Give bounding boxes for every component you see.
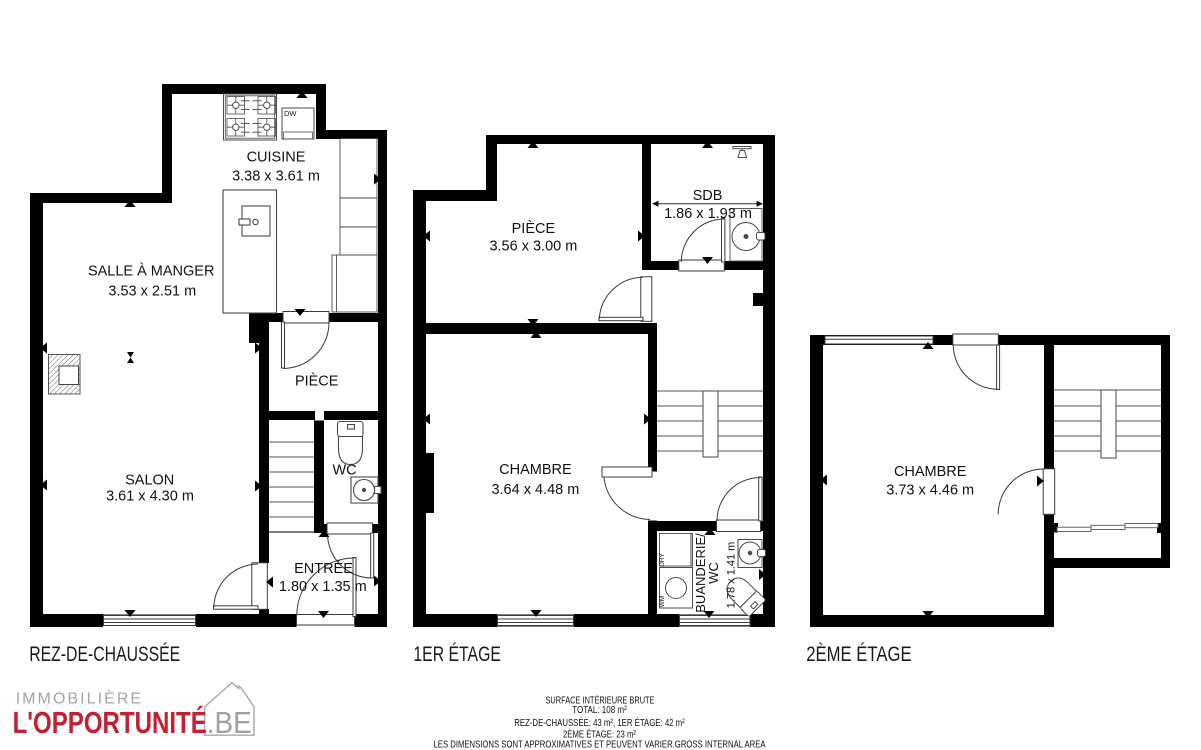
- svg-text:1ER ÉTAGE: 1ER ÉTAGE: [413, 643, 501, 666]
- svg-text:3.56 x 3.00 m: 3.56 x 3.00 m: [489, 239, 577, 255]
- svg-text:1.78 x 1.41 m: 1.78 x 1.41 m: [726, 542, 738, 609]
- svg-text:1.86 x 1.93 m: 1.86 x 1.93 m: [664, 206, 752, 222]
- svg-text:2ÈME ÉTAGE: 2ÈME ÉTAGE: [806, 643, 911, 666]
- svg-text:ENTRÉE: ENTRÉE: [294, 560, 353, 577]
- svg-text:3.61 x 4.30 m: 3.61 x 4.30 m: [106, 489, 194, 505]
- svg-text:PIÈCE: PIÈCE: [295, 373, 339, 390]
- svg-text:REZ-DE-CHAUSSÉE: REZ-DE-CHAUSSÉE: [29, 643, 180, 666]
- svg-text:3.53 x 2.51 m: 3.53 x 2.51 m: [108, 283, 196, 299]
- svg-text:CHAMBRE: CHAMBRE: [499, 462, 572, 478]
- svg-text:PIÈCE: PIÈCE: [512, 220, 556, 237]
- svg-text:3.73 x 4.46 m: 3.73 x 4.46 m: [886, 482, 974, 498]
- svg-text:TOTAL: 108 m²: TOTAL: 108 m²: [572, 704, 627, 716]
- svg-text:REZ-DE-CHAUSSÉE: 43 m², 1ER ÉT: REZ-DE-CHAUSSÉE: 43 m², 1ER ÉTAGE: 42 m²: [514, 716, 685, 729]
- svg-text:L'OPPORTUNITÉ: L'OPPORTUNITÉ: [13, 705, 207, 740]
- svg-text:3.64 x 4.48 m: 3.64 x 4.48 m: [491, 482, 579, 498]
- svg-text:DW: DW: [284, 109, 297, 118]
- svg-text:WM: WM: [659, 596, 666, 608]
- svg-text:1.80 x 1.35 m: 1.80 x 1.35 m: [279, 579, 367, 595]
- svg-text:LES DIMENSIONS SONT APPROXIMAT: LES DIMENSIONS SONT APPROXIMATIVES ET PE…: [434, 739, 766, 750]
- svg-text:SALON: SALON: [125, 472, 174, 488]
- svg-text:3.38 x 3.61 m: 3.38 x 3.61 m: [232, 169, 320, 185]
- svg-text:.BE: .BE: [207, 705, 252, 740]
- svg-text:SALLE À MANGER: SALLE À MANGER: [88, 262, 215, 279]
- svg-text:CUISINE: CUISINE: [247, 150, 306, 166]
- svg-text:WC: WC: [333, 463, 357, 479]
- svg-text:CHAMBRE: CHAMBRE: [894, 464, 967, 480]
- svg-text:SDB: SDB: [693, 188, 723, 204]
- svg-text:DRY: DRY: [659, 553, 666, 567]
